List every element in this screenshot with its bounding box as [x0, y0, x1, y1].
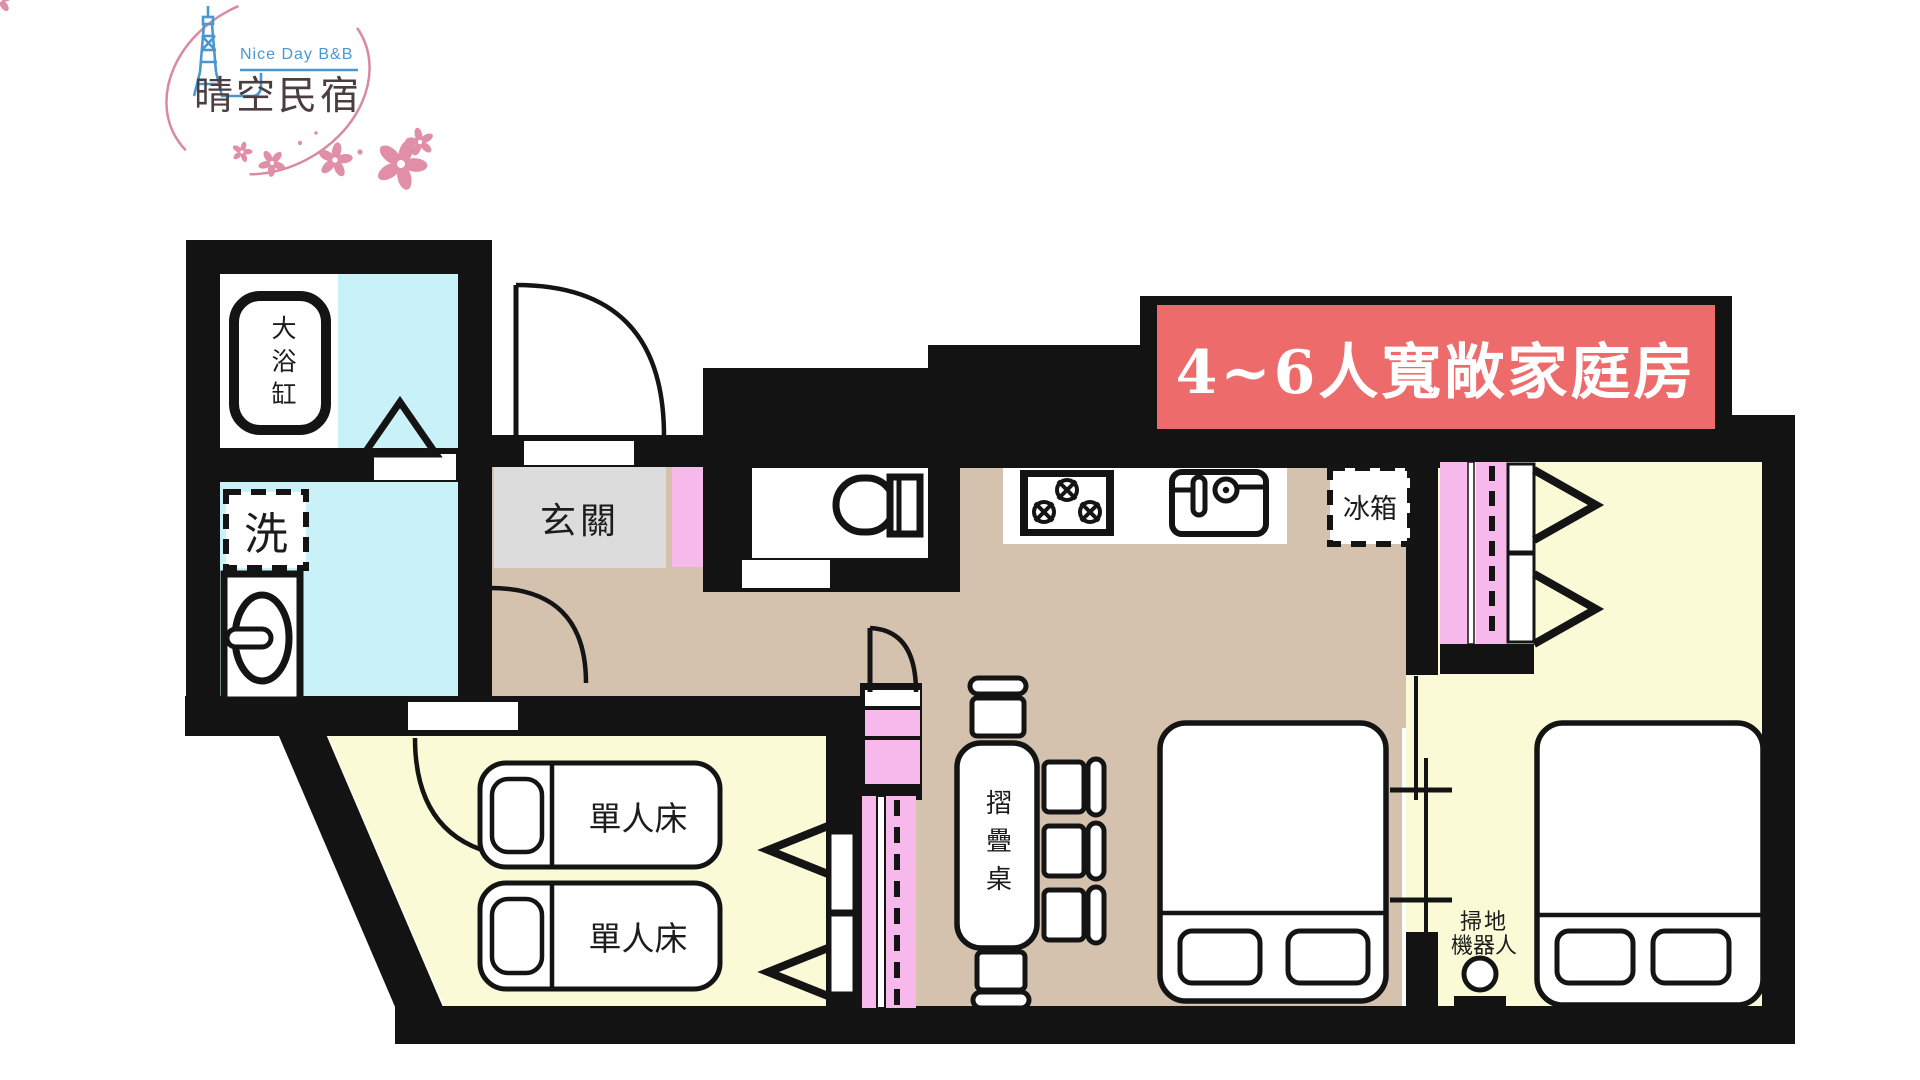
- fridge-icon: [1330, 468, 1410, 544]
- single-bed-icon-b: [480, 883, 720, 989]
- shoe-cabinet: [672, 467, 704, 567]
- toilet-threshold: [742, 560, 830, 588]
- single-bed-icon-a: [480, 763, 720, 867]
- room-banner-bg: [1157, 305, 1715, 429]
- skytree-tower-icon: [194, 6, 358, 96]
- double-bed-icon-1: [1160, 723, 1386, 1001]
- logo-circle: [135, 0, 401, 209]
- logo-art: [0, 0, 440, 209]
- entry-floor: [494, 467, 666, 568]
- basin-icon: [224, 574, 300, 700]
- toilet-icon: [836, 477, 920, 534]
- folding-table-icon: [957, 743, 1037, 948]
- shelf-strip: [862, 796, 916, 1008]
- entry-threshold: [524, 441, 634, 465]
- wardrobe: [1440, 462, 1534, 644]
- sakura-flower-icon: [0, 0, 440, 198]
- bathtub-icon: [234, 296, 326, 430]
- shower-floor: [338, 274, 458, 448]
- stove-icon: [1020, 470, 1114, 536]
- double-bed-icon-2: [1537, 723, 1763, 1005]
- bedroom2-doorway-floor: [1406, 675, 1438, 932]
- kitchen-sink-icon: [1172, 472, 1266, 534]
- closet-panel: [830, 833, 854, 911]
- dining-threshold: [865, 690, 920, 706]
- washing-machine-icon: [226, 492, 306, 568]
- bedroom1-threshold: [408, 702, 518, 730]
- closet-panel: [830, 915, 854, 993]
- floorplan-drawing: [0, 0, 1920, 1080]
- bath-threshold: [374, 454, 456, 480]
- floorplan-page: Nice Day B&B 晴空民宿 4~6人寬敞家庭房 大浴缸 洗 玄關 冰箱 …: [0, 0, 1920, 1080]
